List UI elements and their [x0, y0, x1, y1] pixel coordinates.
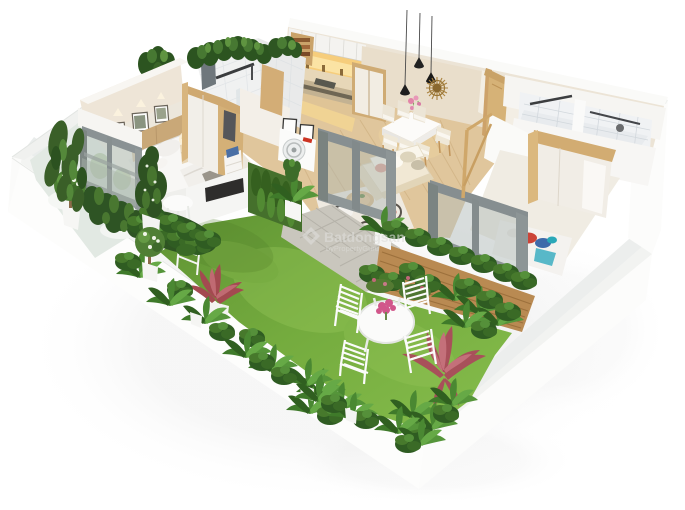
svg-text:Batdongsan: Batdongsan [324, 229, 405, 245]
svg-text:byPropertyGuru: byPropertyGuru [326, 244, 379, 253]
